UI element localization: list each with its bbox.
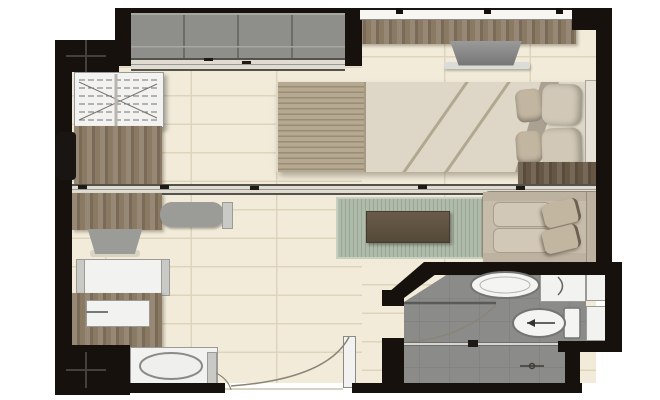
toilet xyxy=(513,308,580,338)
detail-overlay xyxy=(0,0,660,400)
floor-plan xyxy=(0,0,660,400)
bathroom-door xyxy=(404,303,496,342)
shower-mixer xyxy=(520,364,544,369)
entrance-door-swing xyxy=(231,337,349,386)
shower-screen xyxy=(404,340,558,347)
washbasin xyxy=(471,272,563,298)
basin-faucet xyxy=(558,277,563,295)
desk-chair xyxy=(56,132,76,180)
bathroom-wall-diagonal xyxy=(382,262,452,298)
toilet-cistern xyxy=(564,308,580,338)
door-stop-arc xyxy=(216,373,231,390)
wardrobe-hanging-rail xyxy=(79,74,157,126)
sink-unit-basin xyxy=(140,353,202,379)
